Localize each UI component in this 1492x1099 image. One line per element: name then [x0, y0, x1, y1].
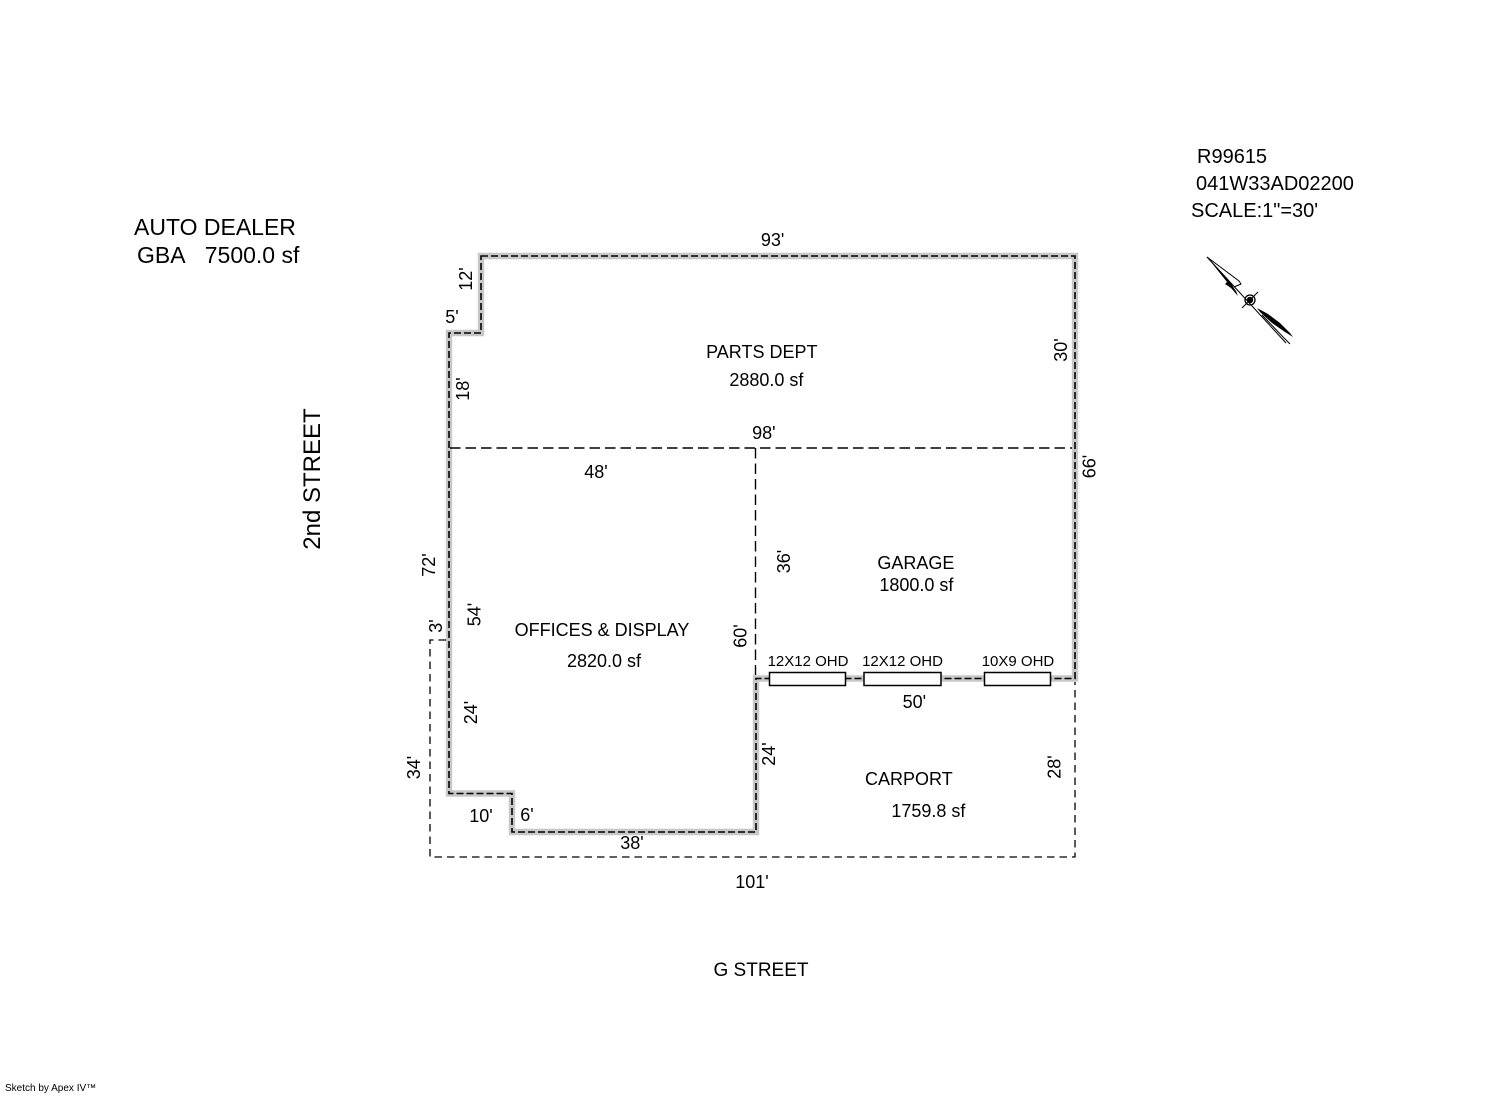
- svg-text:GARAGE: GARAGE: [877, 553, 954, 573]
- svg-text:34': 34': [404, 756, 424, 779]
- svg-text:54': 54': [465, 603, 485, 626]
- svg-text:10X9 OHD: 10X9 OHD: [982, 653, 1055, 670]
- svg-text:38': 38': [620, 833, 643, 853]
- svg-text:G STREET: G STREET: [713, 960, 808, 981]
- svg-text:36': 36': [774, 550, 794, 573]
- svg-text:18': 18': [453, 377, 473, 400]
- svg-text:1759.8 sf: 1759.8 sf: [891, 801, 966, 821]
- svg-text:PARTS DEPT: PARTS DEPT: [706, 342, 817, 362]
- svg-text:101': 101': [735, 872, 768, 892]
- svg-text:24': 24': [759, 742, 779, 765]
- svg-text:SCALE:1"=30': SCALE:1"=30': [1191, 200, 1318, 222]
- svg-text:OFFICES & DISPLAY: OFFICES & DISPLAY: [515, 620, 690, 640]
- svg-text:98': 98': [752, 423, 775, 443]
- svg-text:041W33AD02200: 041W33AD02200: [1196, 173, 1354, 195]
- svg-text:60': 60': [731, 624, 751, 647]
- svg-text:2nd STREET: 2nd STREET: [299, 408, 326, 550]
- svg-text:2820.0 sf: 2820.0 sf: [567, 651, 642, 671]
- svg-text:5': 5': [445, 307, 458, 327]
- svg-text:12X12 OHD: 12X12 OHD: [768, 653, 849, 670]
- svg-text:GBA 7500.0 sf: GBA 7500.0 sf: [137, 242, 300, 268]
- svg-text:24': 24': [461, 701, 481, 724]
- svg-text:1800.0 sf: 1800.0 sf: [879, 575, 954, 595]
- svg-text:50': 50': [903, 692, 926, 712]
- svg-text:10': 10': [469, 806, 492, 826]
- svg-text:12': 12': [456, 267, 476, 290]
- svg-text:Sketch by Apex IV™: Sketch by Apex IV™: [5, 1083, 96, 1094]
- svg-text:AUTO DEALER: AUTO DEALER: [134, 214, 296, 240]
- svg-text:R99615: R99615: [1197, 146, 1267, 168]
- svg-text:6': 6': [520, 805, 533, 825]
- svg-text:66': 66': [1080, 455, 1100, 478]
- svg-text:72': 72': [419, 553, 439, 576]
- svg-text:2880.0 sf: 2880.0 sf: [729, 370, 804, 390]
- svg-text:28': 28': [1045, 755, 1065, 778]
- svg-text:CARPORT: CARPORT: [865, 769, 953, 789]
- svg-text:3': 3': [426, 619, 446, 632]
- svg-text:30': 30': [1051, 338, 1071, 361]
- svg-text:48': 48': [584, 462, 607, 482]
- svg-text:12X12 OHD: 12X12 OHD: [862, 653, 943, 670]
- svg-text:93': 93': [761, 230, 784, 250]
